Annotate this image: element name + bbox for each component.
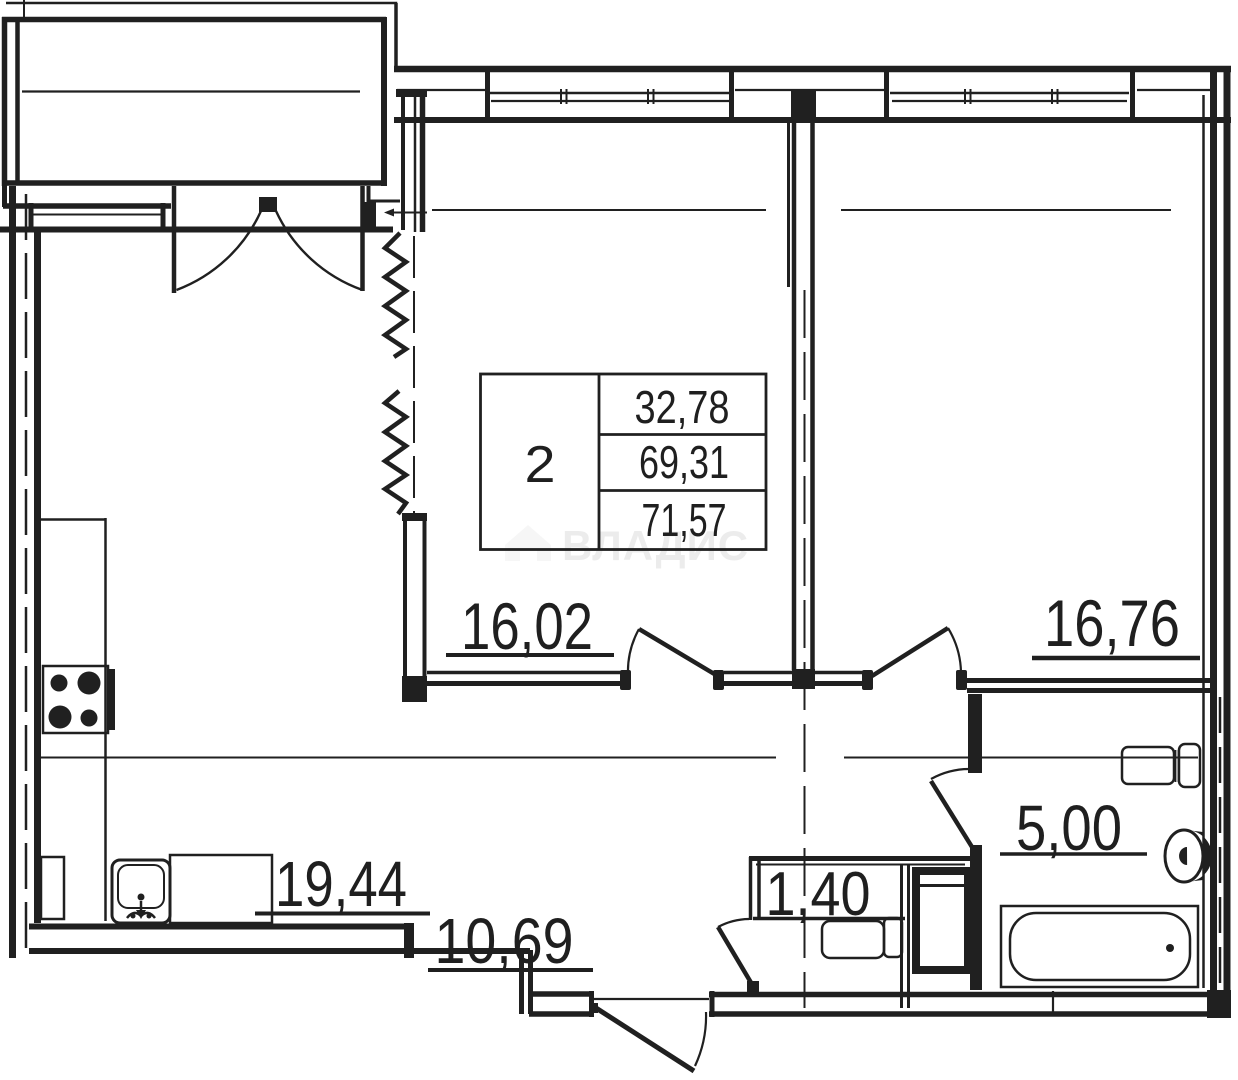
svg-text:16,76: 16,76 [1044,586,1180,660]
svg-text:32,78: 32,78 [635,381,730,433]
svg-text:19,44: 19,44 [275,848,407,920]
svg-text:10,69: 10,69 [435,905,574,977]
svg-text:2: 2 [525,436,556,494]
svg-text:71,57: 71,57 [642,494,727,546]
svg-text:69,31: 69,31 [639,436,729,488]
svg-text:16,02: 16,02 [461,589,593,663]
